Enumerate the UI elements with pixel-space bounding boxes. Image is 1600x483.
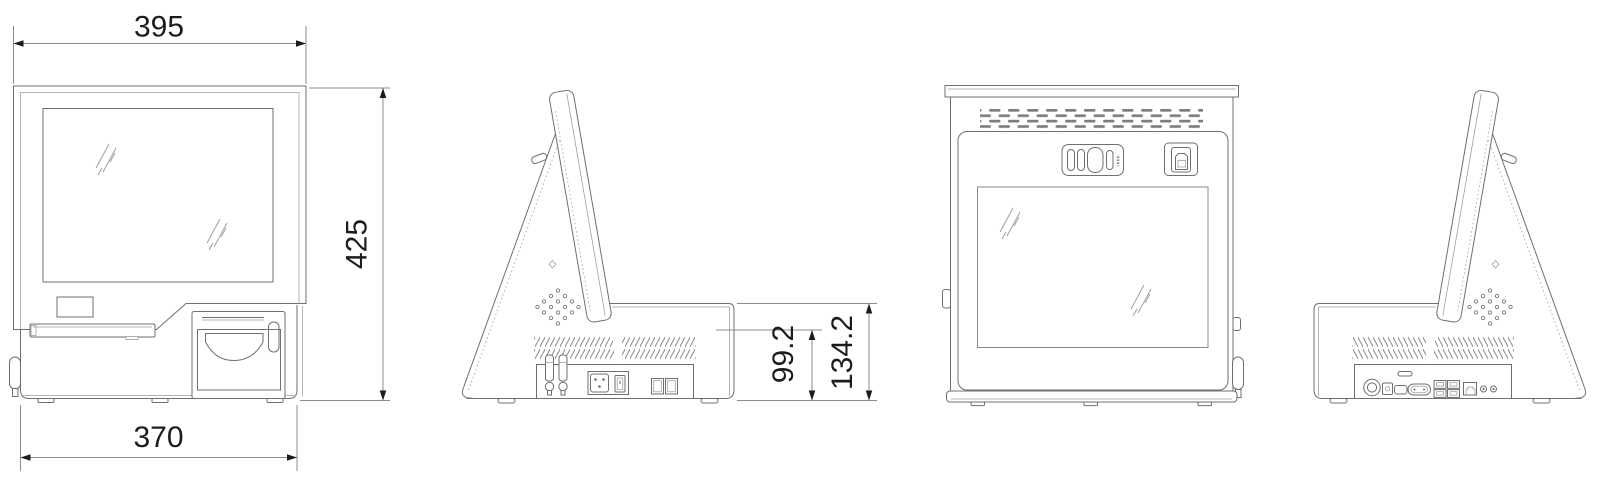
dimension-base-height: 99.2 134.2 [716,304,877,401]
foot [38,399,54,403]
din-connector [1364,379,1380,395]
dimension-label-front-width: 395 [134,11,184,44]
front-view [10,86,307,403]
pos-terminal-dimension-drawing: 395 425 370 [0,0,1600,483]
side-bump [1233,318,1241,331]
dimension-label-base-height: 99.2 [767,325,800,383]
receipt-tray [30,324,155,340]
rear-base-plate [947,391,1238,402]
side-knob [10,357,21,397]
side-view-left [462,89,734,403]
rear-glass-panel [978,187,1209,348]
printer-shelf-top [945,86,1239,98]
rear-connector-cutouts [1062,145,1124,176]
foot [267,399,283,403]
power-inlet-module [588,372,629,395]
dimension-overall-height: 425 [300,88,390,401]
rear-vent-slots [980,109,1203,131]
logo-plate [57,297,93,317]
dimension-label-overall-height: 425 [341,219,374,269]
foot [971,402,985,406]
dimension-label-shelf-height: 134.2 [826,315,859,390]
foot [1084,402,1098,406]
drawing-canvas: 395 425 370 [0,0,1600,483]
foot [1198,402,1212,406]
dimension-front-width: 395 [14,11,307,85]
dimension-label-base-width: 370 [133,421,183,454]
side-chassis-left [462,89,734,403]
usb-b-port-module [1165,143,1198,176]
dimension-base-width: 370 [21,405,298,471]
rear-view [943,86,1244,406]
printer-door [192,312,285,399]
hinge-tab [943,290,951,309]
side-chassis-right [1314,89,1586,403]
front-display-housing [14,86,307,330]
foot [152,399,168,403]
side-view-right [1314,89,1586,403]
